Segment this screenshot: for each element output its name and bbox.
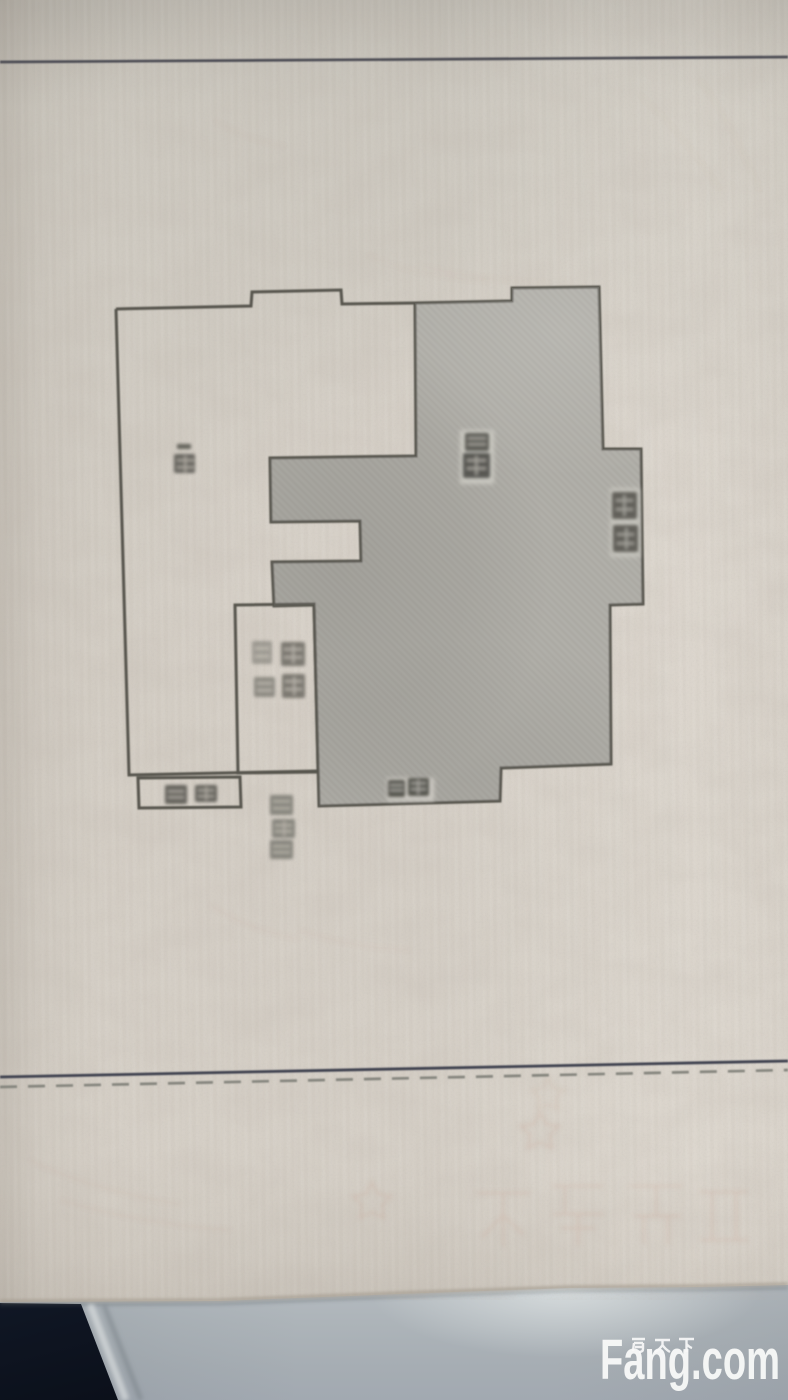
svg-text:Fang.com: Fang.com	[600, 1328, 780, 1392]
